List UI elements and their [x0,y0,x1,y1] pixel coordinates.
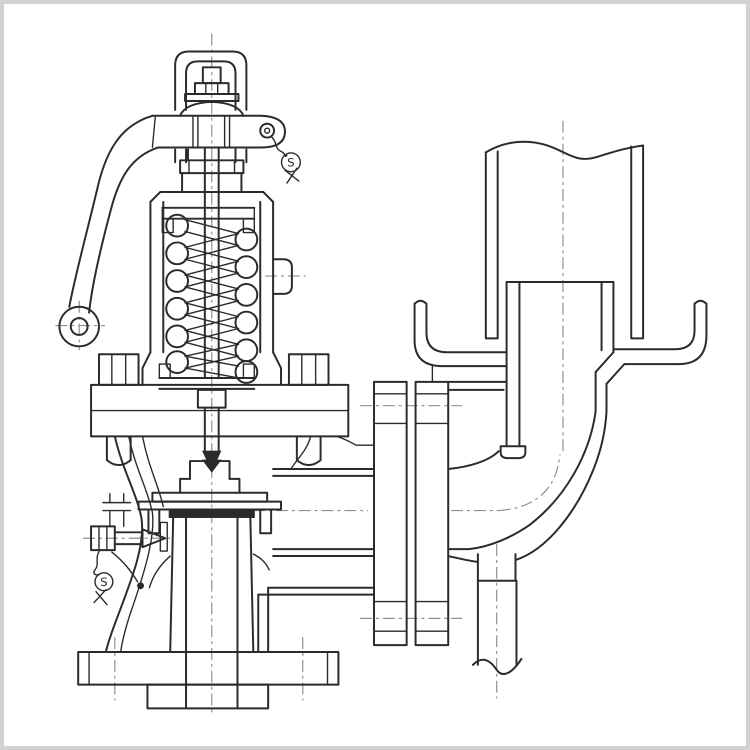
drip-pan [415,301,707,382]
disc-assembly [139,460,281,551]
flange-bolt-bottom [374,602,448,632]
elbow-socket-stub [507,282,520,446]
flange-bolt-top [374,394,448,424]
elbow-outer-wall [448,556,478,562]
inlet-raised-face [147,685,268,709]
bonnet [143,192,292,385]
outlet-passage [258,588,374,595]
guide-plate [139,502,281,510]
pipe-break-line [486,142,643,159]
inlet-nozzle [78,517,338,708]
safety-valve-sectional-drawing: S [4,4,746,746]
bonnet-bolt-right [289,354,329,465]
seal-wire-eyelet [138,583,144,589]
inlet-flange [78,652,338,685]
gag-bracket [103,494,131,527]
outlet-flange-joint [374,382,448,645]
drawing-sheet: S [0,0,750,750]
spring [159,208,257,389]
centerlines [55,34,563,715]
elbow-inner-wall [448,412,595,550]
discharge-pipe [486,142,643,339]
seal-label-top: S [287,156,295,170]
discharge-elbow [448,282,624,674]
lever-pivot-pin [260,124,274,138]
seal-label-bottom: S [100,575,108,589]
pivot-wire-seal: S [271,137,300,183]
valve-disc [169,511,254,518]
